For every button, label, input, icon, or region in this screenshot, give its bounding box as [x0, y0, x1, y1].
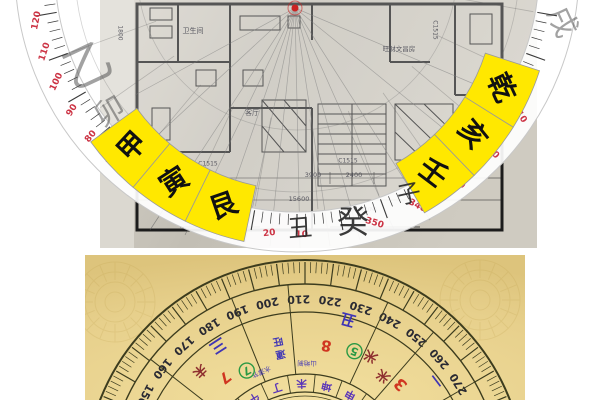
handwritten-char: 癸 [337, 203, 369, 241]
protractor-degree-label: 20 [263, 228, 277, 239]
handwritten-char: 丑 [287, 213, 313, 243]
luopan-photo: 1501601701801902002102202302402502602702… [75, 255, 525, 400]
fengshui-collage: 卫生间客厅旺财文昌房C1515C1515C1515C15153900240015… [0, 0, 600, 400]
hexagram-label: 山地剝 [297, 359, 317, 368]
compass-degree-label: 210 [287, 292, 311, 306]
collage-scene: 卫生间客厅旺财文昌房C1515C1515C1515C15153900240015… [0, 0, 600, 400]
mountain-char: 未 [296, 377, 308, 390]
compass-center-dot [292, 5, 299, 12]
